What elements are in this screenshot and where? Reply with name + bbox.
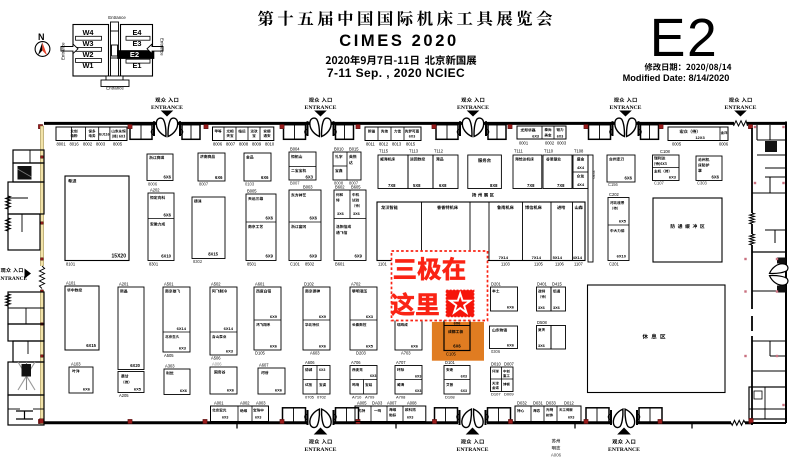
svg-text:6X3: 6X3 [409,135,415,139]
svg-text:6X3: 6X3 [179,346,187,351]
svg-text:W1: W1 [82,61,93,70]
svg-text:6X15: 6X15 [86,343,96,348]
svg-text:A002: A002 [240,401,250,406]
svg-text:ENTRANCE: ENTRANCE [457,447,489,453]
svg-text:3X6: 3X6 [538,344,545,348]
svg-text:A005: A005 [357,401,367,406]
svg-text:C202: C202 [609,192,620,197]
svg-text:6X6: 6X6 [454,322,461,326]
svg-text:8001: 8001 [57,142,67,147]
svg-text:ENTRANCE: ENTRANCE [725,105,757,111]
svg-text:T115: T115 [379,149,389,154]
svg-text:6X6: 6X6 [275,388,283,393]
svg-text:6X5: 6X5 [366,344,374,349]
svg-text:6X6: 6X6 [411,344,419,349]
svg-text:C303: C303 [697,181,708,186]
svg-text:D007: D007 [504,362,515,367]
svg-text:E3: E3 [132,39,141,48]
svg-text:6X6: 6X6 [266,216,274,221]
svg-text:7X8: 7X8 [388,183,396,188]
svg-text:8006: 8006 [148,182,158,187]
svg-text:T111: T111 [514,149,523,154]
svg-text:4X14: 4X14 [573,255,583,260]
svg-text:A101: A101 [66,281,76,286]
svg-text:T112: T112 [434,149,444,154]
svg-text:6X3: 6X3 [306,175,314,180]
svg-text:A202: A202 [150,188,160,193]
svg-text:8003: 8003 [96,142,106,147]
svg-text:8002: 8002 [83,142,93,147]
svg-text:A702: A702 [351,282,361,287]
svg-text:D032: D032 [517,401,528,406]
svg-text:0001: 0001 [519,141,529,146]
svg-text:ENTRANCE: ENTRANCE [457,105,489,111]
svg-text:8101: 8101 [66,262,76,267]
svg-text:D201: D201 [491,282,502,287]
svg-text:A502: A502 [211,282,221,287]
svg-text:A303: A303 [165,364,175,369]
svg-text:6X9: 6X9 [355,254,363,259]
svg-text:6X6: 6X6 [625,176,633,181]
svg-text:W2: W2 [82,50,93,59]
svg-text:6X6: 6X6 [507,343,515,348]
svg-text:1103: 1103 [501,262,511,267]
svg-text:1105: 1105 [534,262,544,267]
svg-text:C156: C156 [608,182,619,187]
svg-text:A006: A006 [212,362,222,367]
svg-text:5X14: 5X14 [553,255,563,260]
svg-text:0705: 0705 [305,395,315,400]
svg-text:A607: A607 [259,363,269,368]
svg-text:6X3: 6X3 [255,416,261,420]
svg-text:T108: T108 [574,149,584,154]
svg-text:N: N [38,32,45,42]
svg-text:6X6: 6X6 [227,388,235,393]
svg-text:12X3: 12X3 [695,135,705,140]
svg-text:8016: 8016 [70,142,80,147]
svg-text:CIMES 2020: CIMES 2020 [339,32,459,50]
svg-text:6X3: 6X3 [415,375,421,379]
svg-text:A008: A008 [407,401,417,406]
svg-text:D401: D401 [537,282,548,287]
svg-text:D031: D031 [533,401,544,406]
svg-text:6X3: 6X3 [319,368,325,372]
svg-text:6X6: 6X6 [270,344,278,349]
svg-text:6X6: 6X6 [83,387,91,392]
svg-text:8302: 8302 [193,259,203,264]
svg-text:15X20: 15X20 [112,254,127,260]
svg-text:Entrance: Entrance [108,15,126,20]
svg-text:6X6: 6X6 [164,175,172,180]
svg-text:ENTRANCE: ENTRANCE [608,447,640,453]
svg-text:A506: A506 [211,356,221,361]
svg-text:B601: B601 [335,262,345,267]
svg-text:D415: D415 [552,282,563,287]
svg-text:A703: A703 [401,351,411,356]
svg-text:A103: A103 [71,362,81,367]
svg-text:8X8: 8X8 [490,183,498,188]
svg-text:1107: 1107 [574,262,584,267]
svg-text:6X10: 6X10 [617,254,627,259]
svg-text:0006: 0006 [719,142,729,147]
svg-text:A710: A710 [352,395,362,400]
svg-text:6X5: 6X5 [619,219,627,224]
svg-text:6X9: 6X9 [266,254,274,259]
svg-text:6X6: 6X6 [215,175,223,180]
svg-text:7-11 Sep. , 2020 NCIEC: 7-11 Sep. , 2020 NCIEC [327,66,465,80]
svg-text:A003: A003 [256,401,266,406]
svg-text:B003: B003 [303,185,313,190]
svg-text:8010: 8010 [265,142,275,147]
svg-text:7X8: 7X8 [557,183,565,188]
svg-text:6X9: 6X9 [270,314,278,319]
svg-text:6X20: 6X20 [130,363,140,368]
svg-text:B007: B007 [290,181,300,186]
svg-text:BJ116: BJ116 [99,133,109,137]
svg-text:6X3: 6X3 [415,389,421,393]
svg-text:1101: 1101 [378,262,388,267]
svg-text:ENTRANCE: ENTRANCE [305,105,337,111]
svg-text:C101: C101 [290,262,301,267]
svg-text:6X9: 6X9 [310,254,318,259]
svg-text:T110: T110 [544,149,554,154]
svg-text:8301: 8301 [149,262,159,267]
svg-text:0103: 0103 [245,182,255,187]
svg-text:6X6: 6X6 [180,388,188,393]
svg-text:6X3: 6X3 [407,416,413,420]
svg-text:1120: 1120 [591,170,596,179]
svg-text:D033: D033 [546,401,557,406]
svg-text:Entrance: Entrance [61,42,66,60]
svg-text:C201: C201 [609,262,620,267]
svg-text:ENTRANCE: ENTRANCE [0,276,28,282]
svg-text:B005: B005 [247,189,257,194]
svg-text:E4: E4 [132,28,142,37]
svg-text:3X6: 3X6 [337,212,344,216]
svg-text:A707: A707 [396,360,406,365]
svg-text:7X14: 7X14 [532,255,542,260]
svg-text:1106: 1106 [555,262,565,267]
svg-text:B004: B004 [290,147,300,152]
svg-text:4X4: 4X4 [577,165,585,170]
svg-text:C108: C108 [660,149,671,154]
svg-text:6X6: 6X6 [310,216,318,221]
svg-text:6X14: 6X14 [177,326,187,331]
svg-text:3X6: 3X6 [553,306,560,310]
svg-text:E1: E1 [132,61,141,70]
svg-text:6X3: 6X3 [669,175,677,180]
svg-text:A505: A505 [164,353,174,358]
svg-text:8007: 8007 [199,182,209,187]
svg-text:A709: A709 [365,395,375,400]
svg-text:Entrance: Entrance [106,86,124,91]
svg-text:A201: A201 [119,282,129,287]
svg-text:8007: 8007 [226,142,236,147]
svg-text:6X3: 6X3 [222,416,228,420]
svg-text:D012: D012 [564,401,575,406]
svg-text:A601: A601 [255,282,265,287]
svg-text:3X6: 3X6 [353,212,360,216]
svg-text:B602: B602 [335,185,345,190]
svg-text:6X6: 6X6 [164,213,172,218]
svg-text:A708: A708 [396,395,406,400]
svg-text:6X6: 6X6 [453,344,461,349]
svg-text:A606: A606 [305,360,315,365]
svg-text:8008: 8008 [239,142,249,147]
svg-text:4X4: 4X4 [577,182,585,187]
svg-text:A001: A001 [214,401,224,406]
svg-text:A007: A007 [387,401,397,406]
svg-text:6X6: 6X6 [319,344,327,349]
svg-text:D009: D009 [504,392,514,397]
svg-text:Modified Date: 8/14/2020: Modified Date: 8/14/2020 [623,73,730,83]
svg-text:6X3: 6X3 [461,375,467,379]
svg-text:D102: D102 [304,282,315,287]
svg-text:D010: D010 [491,362,502,367]
svg-text:C105: C105 [446,352,457,357]
svg-text:8502: 8502 [305,262,315,267]
svg-text:6X6: 6X6 [261,175,269,180]
svg-text:W4: W4 [82,28,94,37]
svg-text:6X3: 6X3 [226,349,234,354]
svg-text:3X6: 3X6 [538,306,545,310]
svg-text:D508: D508 [537,320,548,325]
svg-text:6X3: 6X3 [557,135,563,139]
svg-text:6X3: 6X3 [532,135,539,139]
svg-text:E2: E2 [650,9,718,68]
svg-text:A006: A006 [551,453,562,458]
svg-text:8006: 8006 [213,142,223,147]
svg-text:6X3: 6X3 [568,416,574,420]
svg-text:8012: 8012 [379,142,389,147]
svg-text:8501: 8501 [247,262,257,267]
svg-text:6X3: 6X3 [370,374,376,378]
svg-text:A603: A603 [310,351,320,356]
svg-text:6X10: 6X10 [161,254,171,259]
svg-text:6X6: 6X6 [712,175,720,180]
svg-text:D107: D107 [491,392,501,397]
svg-text:A706: A706 [351,360,361,365]
svg-text:C107: C107 [654,181,665,186]
svg-text:0005: 0005 [672,142,682,147]
svg-text:DA03: DA03 [372,401,383,406]
svg-text:0002: 0002 [545,141,555,146]
svg-text:B015: B015 [349,147,359,152]
svg-text:6X6: 6X6 [507,305,515,310]
svg-text:D108: D108 [445,395,455,400]
svg-text:D203: D203 [356,351,367,356]
svg-text:6X3: 6X3 [366,314,374,319]
svg-text:ENTRANCE: ENTRANCE [305,447,337,453]
svg-text:8005: 8005 [113,142,123,147]
svg-text:W3: W3 [82,39,93,48]
svg-text:B010: B010 [334,147,344,152]
svg-text:ENTRANCE: ENTRANCE [610,105,642,111]
svg-text:Entrance: Entrance [160,38,165,56]
svg-text:6X9: 6X9 [319,314,327,319]
svg-text:6X3: 6X3 [461,389,467,393]
svg-text:7X14: 7X14 [499,255,509,260]
svg-text:T113: T113 [409,149,419,154]
svg-text:8X15: 8X15 [208,252,218,257]
svg-text:8011: 8011 [366,142,376,147]
svg-text:B605: B605 [351,185,361,190]
svg-text:A501: A501 [164,282,174,287]
svg-text:8013: 8013 [392,142,402,147]
svg-text:8015: 8015 [406,142,416,147]
svg-text:6X8: 6X8 [439,183,447,188]
svg-text:8009: 8009 [252,142,262,147]
svg-text:5X8: 5X8 [413,183,421,188]
svg-text:D105: D105 [255,351,266,356]
svg-text:D101: D101 [445,360,456,365]
svg-text:0702: 0702 [317,395,327,400]
svg-text:E2: E2 [130,50,139,59]
svg-text:7X8: 7X8 [527,183,535,188]
svg-text:6X5: 6X5 [134,387,142,392]
svg-text:6X14: 6X14 [224,326,234,331]
svg-text:0306: 0306 [491,349,501,354]
svg-text:0003: 0003 [557,141,567,146]
svg-text:A205: A205 [119,393,129,398]
svg-text:ENTRANCE: ENTRANCE [151,105,183,111]
